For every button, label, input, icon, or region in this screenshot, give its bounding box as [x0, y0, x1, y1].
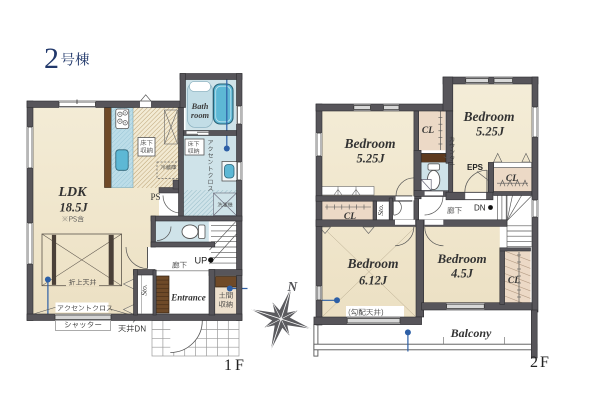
- svg-text:Bedroom: Bedroom: [462, 109, 514, 124]
- svg-text:CL: CL: [508, 276, 520, 286]
- svg-text:Bedroom: Bedroom: [436, 251, 486, 266]
- svg-text:UP: UP: [195, 256, 208, 266]
- svg-text:CL: CL: [506, 174, 518, 184]
- svg-text:Entrance: Entrance: [170, 293, 206, 303]
- svg-text:DN: DN: [474, 204, 486, 213]
- svg-text:Bath: Bath: [191, 102, 209, 111]
- svg-text:Sto.: Sto.: [376, 204, 385, 216]
- svg-text:6.12J: 6.12J: [359, 274, 388, 288]
- svg-text:Sto.: Sto.: [140, 284, 149, 296]
- svg-text:18.5J: 18.5J: [59, 201, 88, 215]
- svg-text:LDK: LDK: [58, 185, 89, 200]
- svg-text:Bedroom: Bedroom: [346, 256, 398, 271]
- svg-text:Balcony: Balcony: [450, 326, 492, 340]
- svg-text:N: N: [287, 279, 299, 294]
- svg-text:PS: PS: [151, 192, 161, 202]
- svg-text:CL: CL: [422, 126, 434, 136]
- svg-text:room: room: [191, 111, 210, 120]
- svg-text:5.25J: 5.25J: [356, 152, 385, 166]
- svg-text:2: 2: [44, 42, 59, 75]
- svg-text:4.5J: 4.5J: [450, 267, 474, 281]
- svg-text:Bedroom: Bedroom: [343, 136, 395, 151]
- svg-text:2F: 2F: [530, 354, 551, 371]
- svg-text:5.25J: 5.25J: [476, 125, 505, 139]
- svg-text:1F: 1F: [224, 357, 247, 374]
